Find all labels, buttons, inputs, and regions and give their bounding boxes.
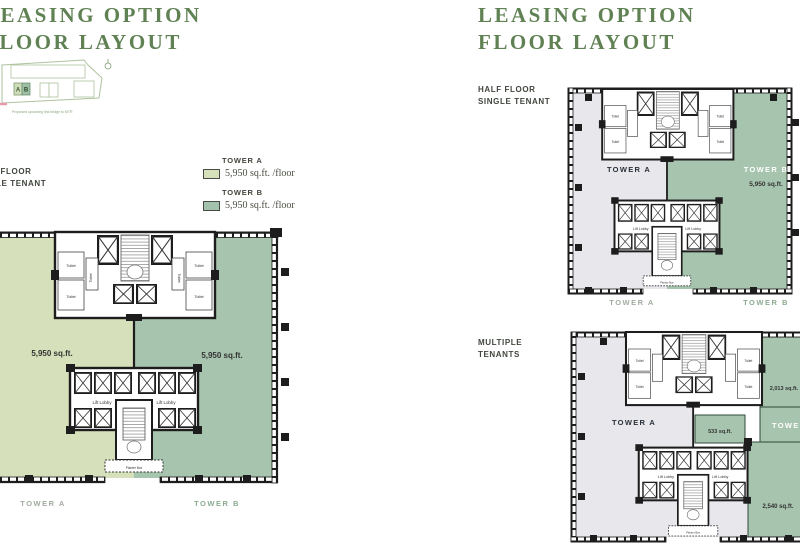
tower-a-caption: TOWER A bbox=[609, 298, 655, 307]
lift-lobby-label: Lift Lobby bbox=[633, 227, 649, 231]
toilet-label: Toilet bbox=[636, 385, 644, 389]
site-caption: Proposed upcoming link bridge to MTR bbox=[12, 110, 73, 114]
toilet-label: Toilet bbox=[194, 294, 204, 299]
tower-a-label: TOWER A bbox=[612, 418, 656, 427]
legend-tower-b-swatch bbox=[203, 201, 220, 211]
left-section-label: HALF FLOOR SINGLE TENANT bbox=[0, 166, 46, 189]
legend-item-tower-a: TOWER A 5,950 sq.ft. /floor bbox=[203, 156, 295, 179]
site-location-plan: A B Proposed upcoming link bridge to MTR bbox=[0, 56, 120, 120]
toilet-label: Toilet bbox=[716, 140, 724, 144]
lift-lobby-label: Lift Lobby bbox=[92, 400, 112, 405]
half-floor-section-label: HALF FLOOR SINGLE TENANT bbox=[478, 84, 550, 107]
site-building bbox=[74, 81, 94, 97]
site-building bbox=[40, 83, 49, 97]
half-floor-label-line1: HALF FLOOR bbox=[478, 84, 550, 96]
toilet-label: Toilet bbox=[177, 273, 182, 283]
legend-tower-a-value: 5,950 sq.ft. /floor bbox=[225, 168, 295, 179]
tower-a-label: TOWER A bbox=[607, 165, 651, 174]
left-section-label-line1: HALF FLOOR bbox=[0, 166, 46, 178]
tower-b-label: TOWER B bbox=[744, 165, 788, 174]
right-title-line1: LEASING OPTION bbox=[478, 2, 696, 29]
tower-b-area-label: 5,950 sq.ft. bbox=[201, 351, 242, 360]
brochure-spread: LEASING OPTION FLOOR LAYOUT A B Proposed… bbox=[0, 0, 800, 552]
zone-unit-2013 bbox=[760, 337, 800, 407]
site-podium bbox=[11, 65, 85, 78]
tower-a-caption: TOWER A bbox=[20, 499, 66, 508]
lift-lobby-label: Lift Lobby bbox=[685, 227, 701, 231]
right-title-line2: FLOOR LAYOUT bbox=[478, 29, 696, 56]
toilet-label: Toilet bbox=[744, 385, 752, 389]
multiple-tenants-label-line1: MULTIPLE bbox=[478, 337, 522, 349]
tower-a-area-label: 5,950 sq.ft. bbox=[31, 349, 72, 358]
legend-tower-a-name: TOWER A bbox=[222, 156, 295, 165]
tower-b-label: TOWER B bbox=[772, 421, 800, 430]
unit-533-area-label: 533 sq.ft. bbox=[708, 429, 732, 435]
toilet-label: Toilet bbox=[88, 272, 93, 282]
unit-2540-area-label: 2,540 sq.ft. bbox=[762, 504, 793, 510]
left-section-label-line2: SINGLE TENANT bbox=[0, 178, 46, 190]
toilet-label: Toilet bbox=[612, 115, 620, 119]
unit-2013-area-label: 2,013 sq.ft. bbox=[770, 386, 799, 392]
site-building bbox=[49, 83, 58, 97]
zone-unit-2540 bbox=[748, 442, 800, 537]
floor-plan-multiple-tenants: Toilet Toilet Toilet Toilet Lift Lobby L… bbox=[560, 328, 800, 552]
toilet-label: Toilet bbox=[66, 294, 76, 299]
left-title-line2: FLOOR LAYOUT bbox=[0, 29, 202, 56]
legend-tower-b-name: TOWER B bbox=[222, 188, 295, 197]
left-page-title: LEASING OPTION FLOOR LAYOUT bbox=[0, 2, 202, 57]
legend-item-tower-b: TOWER B 5,950 sq.ft. /floor bbox=[203, 188, 295, 211]
planter-box-label: Planter Box bbox=[126, 466, 143, 470]
legend-tower-a-swatch bbox=[203, 169, 220, 179]
multiple-tenants-section-label: MULTIPLE TENANTS bbox=[478, 337, 522, 360]
multiple-tenants-label-line2: TENANTS bbox=[478, 349, 522, 361]
legend: TOWER A 5,950 sq.ft. /floor TOWER B 5,95… bbox=[203, 156, 295, 220]
planter-box-label: Planter Box bbox=[686, 530, 701, 534]
floor-plan-half-floor: Toilet Toilet Toilet Toilet Lift Lobby L… bbox=[560, 84, 800, 314]
tower-b-caption: TOWER B bbox=[194, 499, 240, 508]
right-page-title: LEASING OPTION FLOOR LAYOUT bbox=[478, 2, 696, 57]
site-block-b-label: B bbox=[24, 88, 29, 94]
toilet-label: Toilet bbox=[66, 263, 76, 268]
tower-b-caption: TOWER B bbox=[743, 298, 789, 307]
toilet-label: Toilet bbox=[194, 263, 204, 268]
toilet-label: Toilet bbox=[744, 359, 752, 363]
lift-lobby-label: Lift Lobby bbox=[156, 400, 176, 405]
north-arrow-icon bbox=[105, 63, 111, 69]
toilet-label: Toilet bbox=[612, 140, 620, 144]
tower-b-area-label: 5,950 sq.ft. bbox=[749, 181, 783, 188]
legend-tower-b-value: 5,950 sq.ft. /floor bbox=[225, 200, 295, 211]
floor-plan-left: Toilet Toilet Toilet Toilet Toilet Toile… bbox=[0, 228, 300, 513]
toilet-label: Toilet bbox=[716, 115, 724, 119]
site-block-a-label: A bbox=[16, 88, 21, 94]
lift-lobby-label: Lift Lobby bbox=[712, 475, 728, 479]
half-floor-label-line2: SINGLE TENANT bbox=[478, 96, 550, 108]
lift-lobby-label: Lift Lobby bbox=[658, 475, 674, 479]
left-title-line1: LEASING OPTION bbox=[0, 2, 202, 29]
toilet-label: Toilet bbox=[636, 359, 644, 363]
planter-box-label: Planter Box bbox=[660, 280, 674, 284]
